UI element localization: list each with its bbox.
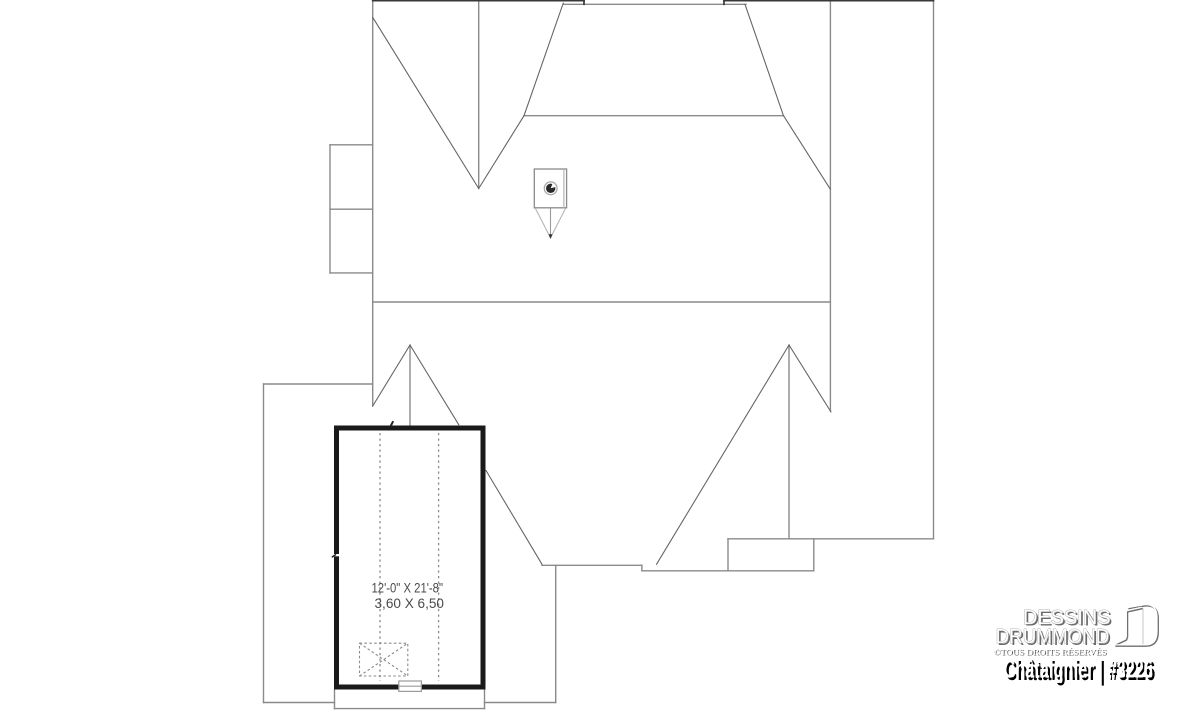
svg-text:Châtaignier | #3226: Châtaignier | #3226 [1003,653,1153,683]
svg-text:DRUMMOND: DRUMMOND [996,625,1110,648]
svg-text:12'-0" X 21'-8": 12'-0" X 21'-8" [372,580,444,596]
svg-text:3,60 X 6,50: 3,60 X 6,50 [375,595,445,611]
